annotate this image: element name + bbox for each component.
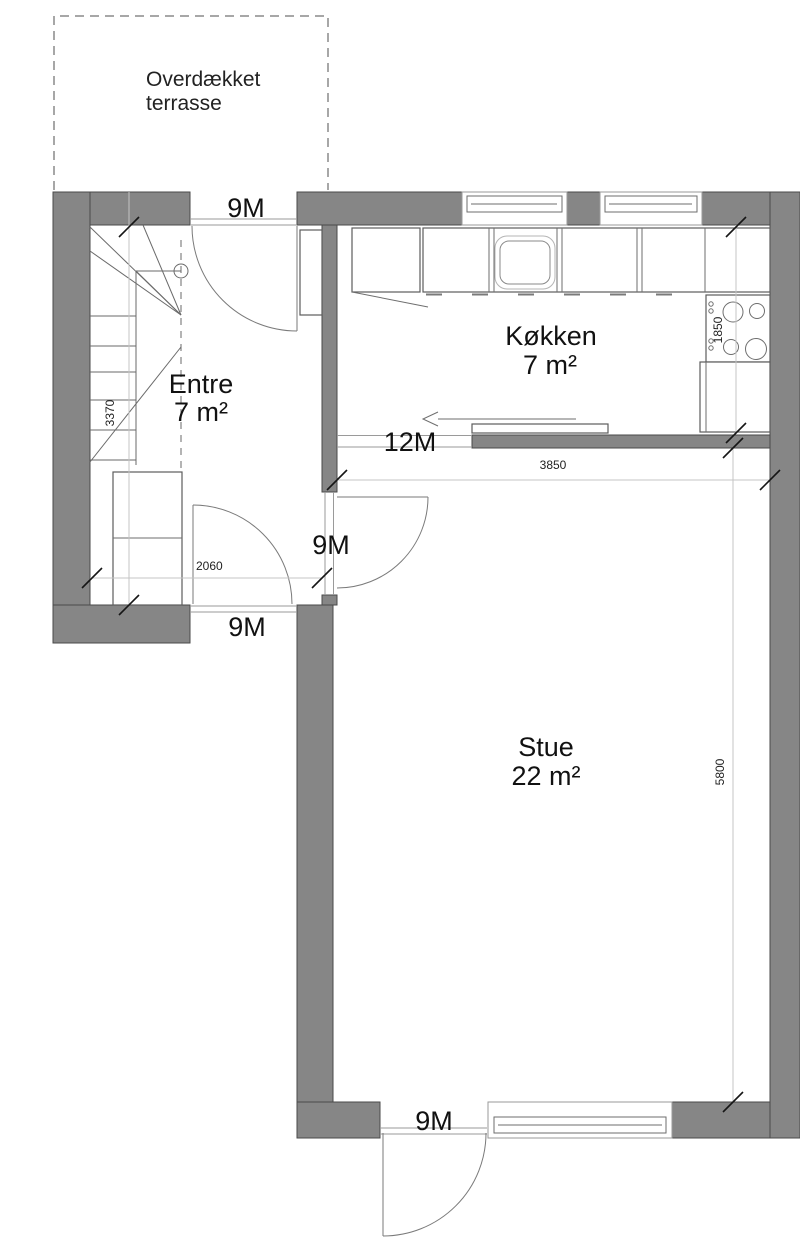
kitchen-counter: [423, 228, 770, 292]
wall-kitchen-stue: [472, 435, 770, 448]
dim-entre-width: 2060: [196, 559, 223, 573]
opening-jambs: [190, 219, 487, 1134]
terrace-label-line2: terrasse: [146, 92, 222, 115]
cabinet-door-open: [352, 292, 428, 307]
label-kitchen-stue-opening: 12M: [384, 427, 437, 457]
dim-stue-width: 3850: [540, 458, 567, 472]
kitchen-window-2: [600, 192, 702, 225]
entre-exterior-door: [193, 505, 292, 604]
doors: [192, 226, 486, 1236]
terrace-door: [192, 226, 297, 331]
label-entre-exterior-door: 9M: [228, 612, 266, 642]
kitchen-window-1: [462, 192, 567, 225]
wall-stue-left: [297, 605, 333, 1138]
dimension-lines: [82, 192, 780, 1112]
tall-cabinet: [352, 228, 420, 292]
floor-plan: Overdækket terrasse: [0, 0, 800, 1254]
wall-left: [53, 192, 90, 643]
room-name-entre: Entre: [169, 369, 234, 399]
wall-partition-entre: [322, 225, 337, 492]
dim-stue-depth: 5800: [713, 758, 727, 785]
wall-top-mid: [297, 192, 462, 225]
label-stue-exterior-door: 9M: [415, 1106, 453, 1136]
wall-partition-stub: [322, 595, 337, 605]
terrace-label-line1: Overdækket: [146, 68, 261, 91]
sink: [500, 241, 550, 284]
lower-cabinet: [700, 362, 770, 432]
entre-shelf: [300, 230, 322, 315]
counter-bar: [472, 424, 608, 433]
wall-entre-bottom: [53, 605, 190, 643]
entre-stue-door: [337, 497, 428, 588]
wall-right: [770, 192, 800, 1138]
wall-bottom-left: [297, 1102, 380, 1138]
dim-kitchen-depth: 1850: [711, 316, 725, 343]
wall-top-between-windows: [567, 192, 600, 225]
stue-exterior-door: [383, 1133, 486, 1236]
room-name-kokken: Køkken: [505, 321, 597, 351]
dim-entre-depth: 3370: [103, 399, 117, 426]
label-entre-stue-door: 9M: [312, 530, 350, 560]
label-terrace-door: 9M: [227, 193, 265, 223]
room-area-kokken: 7 m²: [523, 350, 577, 380]
room-name-stue: Stue: [518, 732, 574, 762]
floor-plan-svg: Overdækket terrasse: [0, 0, 800, 1254]
walls: [53, 192, 800, 1138]
room-area-stue: 22 m²: [511, 761, 580, 791]
room-area-entre: 7 m²: [174, 397, 228, 427]
stue-window: [488, 1102, 672, 1138]
